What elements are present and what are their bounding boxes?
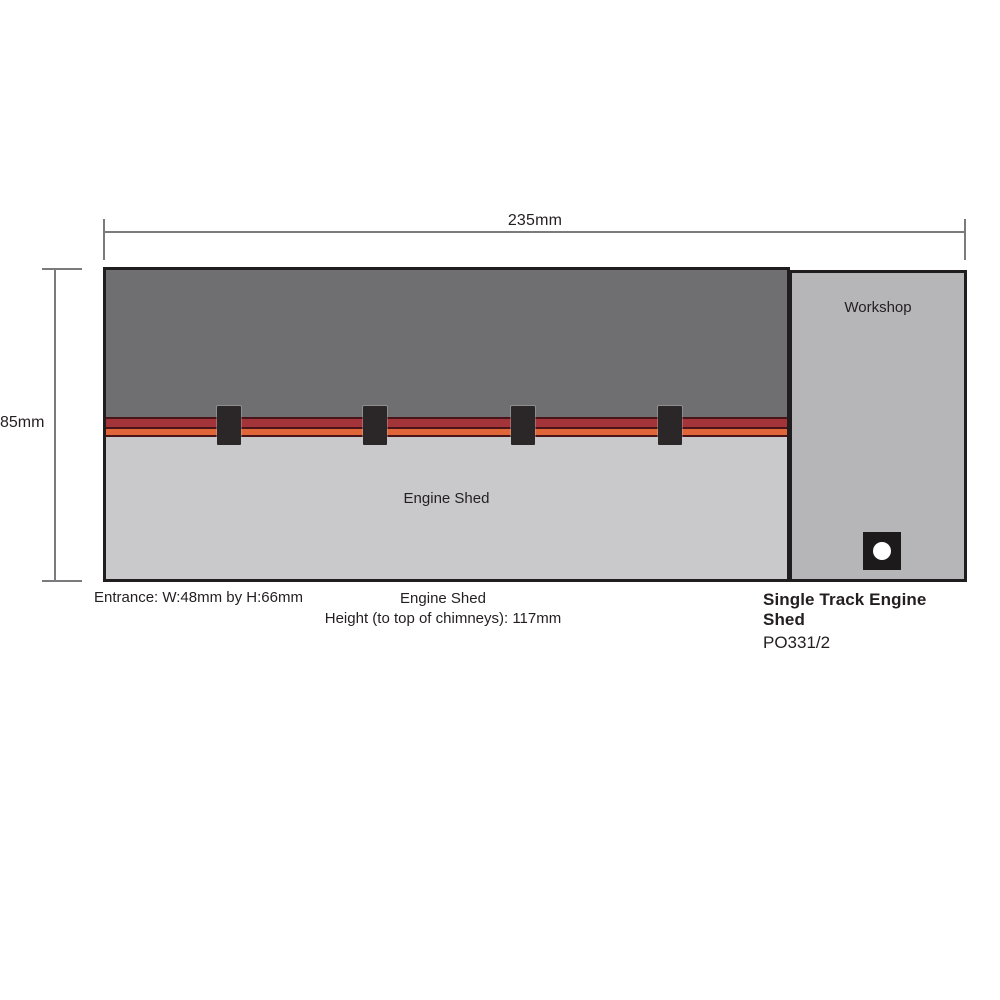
fixing-tab-3: [511, 406, 535, 445]
width-dimension-tick-left: [103, 219, 105, 260]
height-dimension-cap-bottom: [42, 580, 82, 582]
hole-marker-circle: [873, 542, 891, 560]
workshop-label: Workshop: [792, 299, 964, 316]
width-dimension-line: [104, 231, 966, 233]
fixing-tab-1: [217, 406, 241, 445]
hole-marker-square: [863, 532, 901, 570]
shed-caption-title: Engine Shed: [298, 589, 588, 609]
engine-shed-elevation: Engine Shed: [103, 267, 790, 582]
height-dimension-label: 85mm: [0, 414, 42, 432]
width-dimension-tick-right: [964, 219, 966, 260]
kit-dimension-diagram: 235mm 85mm Engine Shed Workshop Entrance…: [0, 0, 1000, 1000]
product-title: Single Track Engine Shed: [763, 590, 973, 630]
product-info: Single Track Engine Shed PO331/2: [763, 590, 973, 653]
height-dimension-line: [54, 269, 56, 582]
height-dimension-cap-top: [42, 268, 82, 270]
stripe-red-band: [106, 419, 787, 427]
workshop-elevation: Workshop: [789, 270, 967, 582]
engine-shed-label: Engine Shed: [106, 490, 787, 507]
product-code: PO331/2: [763, 633, 973, 653]
shed-caption-height: Height (to top of chimneys): 117mm: [298, 609, 588, 629]
width-dimension-label: 235mm: [104, 212, 966, 230]
roof-trim-stripe: [106, 417, 787, 437]
stripe-edge-bottom: [106, 435, 787, 437]
entrance-dimensions-caption: Entrance: W:48mm by H:66mm: [94, 589, 303, 606]
shed-height-caption: Engine Shed Height (to top of chimneys):…: [298, 589, 588, 629]
roof-panel: [106, 270, 787, 417]
fixing-tab-4: [658, 406, 682, 445]
fixing-tab-2: [363, 406, 387, 445]
